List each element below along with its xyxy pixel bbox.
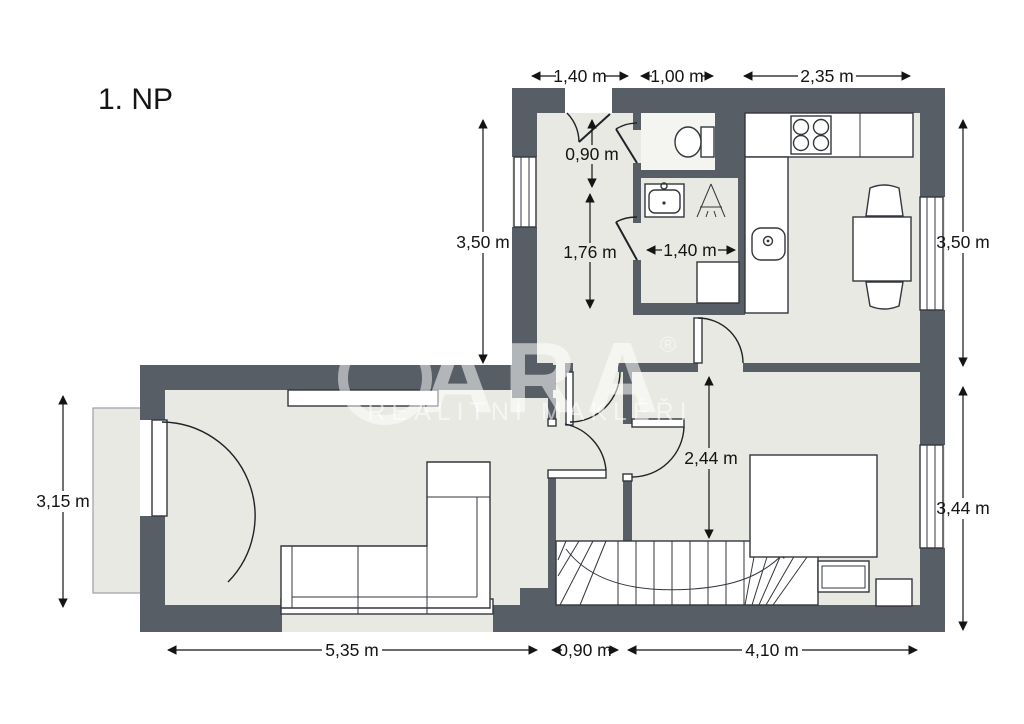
chair-top — [866, 185, 903, 216]
bench — [818, 561, 869, 592]
wall-right-2 — [920, 310, 945, 445]
toilet-icon — [675, 127, 714, 157]
dim-label: 0,90 m — [558, 640, 612, 660]
dim-label: 3,44 m — [936, 498, 990, 518]
floor-plan-canvas: ARA ® REALITNÍ MAKLÉŘI 1. NP 1,40 m 1,00… — [0, 0, 1024, 724]
entrance-opening — [565, 88, 612, 113]
wall-living-left-1 — [140, 365, 165, 420]
dim-label: 1,40 m — [553, 66, 607, 86]
wall-wc-left-3 — [633, 260, 641, 303]
washbasin-icon — [645, 183, 684, 217]
dim-label: 2,44 m — [684, 448, 738, 468]
wall-hall-left-2 — [548, 474, 556, 607]
dim-label: 3,50 m — [936, 232, 990, 252]
dim-label: 3,15 m — [36, 491, 90, 511]
dim-bottom-hall: 0,90 m — [552, 640, 618, 660]
dim-bottom-bedroom: 4,10 m — [628, 640, 917, 660]
dim-bottom-living: 5,35 m — [168, 640, 537, 660]
wall-bottom-left — [140, 605, 282, 632]
dim-label: 2,35 m — [800, 66, 854, 86]
chair-bottom — [866, 282, 903, 309]
floor-plan-page: ARA ® REALITNÍ MAKLÉŘI 1. NP 1,40 m 1,00… — [0, 0, 1024, 724]
wall-wc-left-2 — [633, 163, 641, 223]
dim-top-entry: 1,40 m — [532, 66, 628, 86]
dim-label: 1,76 m — [563, 242, 617, 262]
dim-label: 0,90 m — [565, 144, 619, 164]
watermark-registered: ® — [660, 332, 676, 357]
dim-label: 5,35 m — [325, 640, 379, 660]
watermark-tagline: REALITNÍ MAKLÉŘI — [367, 397, 692, 426]
nightstand — [876, 579, 912, 606]
wall-left-upper-1 — [512, 88, 537, 157]
wall-right-1 — [920, 108, 945, 197]
dim-label: 1,40 m — [663, 240, 717, 260]
page-title: 1. NP — [98, 83, 173, 116]
wall-bottom-right — [493, 605, 945, 632]
wall-wc-left-1 — [633, 113, 641, 130]
wall-bath-bottom — [633, 303, 745, 315]
kitchen-counter-side — [745, 157, 788, 313]
dim-top-wc: 1,00 m — [641, 66, 713, 86]
dim-label: 1,00 m — [650, 66, 704, 86]
wall-mid-c — [743, 363, 920, 372]
dim-label: 4,10 m — [745, 640, 799, 660]
bedroom-window — [920, 445, 943, 548]
dim-label: 3,50 m — [456, 232, 510, 252]
shower-icon — [697, 262, 739, 303]
wall-bedroom-div-2 — [623, 476, 632, 543]
dim-left-living: 3,15 m — [36, 396, 90, 607]
hall-window — [514, 157, 536, 227]
kitchen-window — [920, 197, 943, 310]
wall-wc-right — [715, 113, 745, 178]
wall-living-left-2 — [140, 516, 165, 607]
stove-icon — [791, 116, 831, 154]
wall-wc-bath-div — [641, 170, 715, 178]
dining-table — [853, 217, 911, 281]
dim-top-kitchen: 2,35 m — [744, 66, 910, 86]
wall-top-right — [612, 88, 945, 113]
bed — [750, 455, 877, 557]
